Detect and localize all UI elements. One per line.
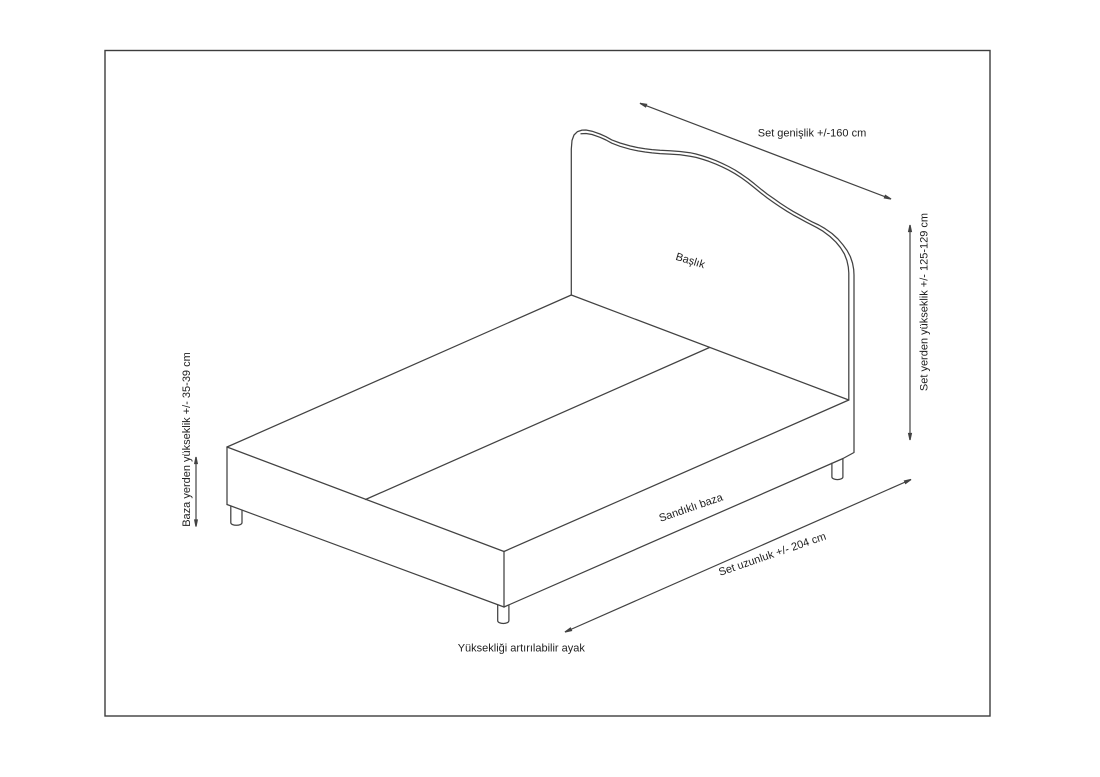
svg-text:Yüksekliği artırılabilir ayak: Yüksekliği artırılabilir ayak: [458, 642, 586, 654]
svg-text:Set yerden yükseklik +/- 125-1: Set yerden yükseklik +/- 125-129 cm: [918, 213, 930, 391]
svg-text:Set genişlik +/-160 cm: Set genişlik +/-160 cm: [758, 128, 867, 140]
svg-text:Baza yerden yükseklik +/- 35-3: Baza yerden yükseklik +/- 35-39 cm: [181, 352, 193, 527]
